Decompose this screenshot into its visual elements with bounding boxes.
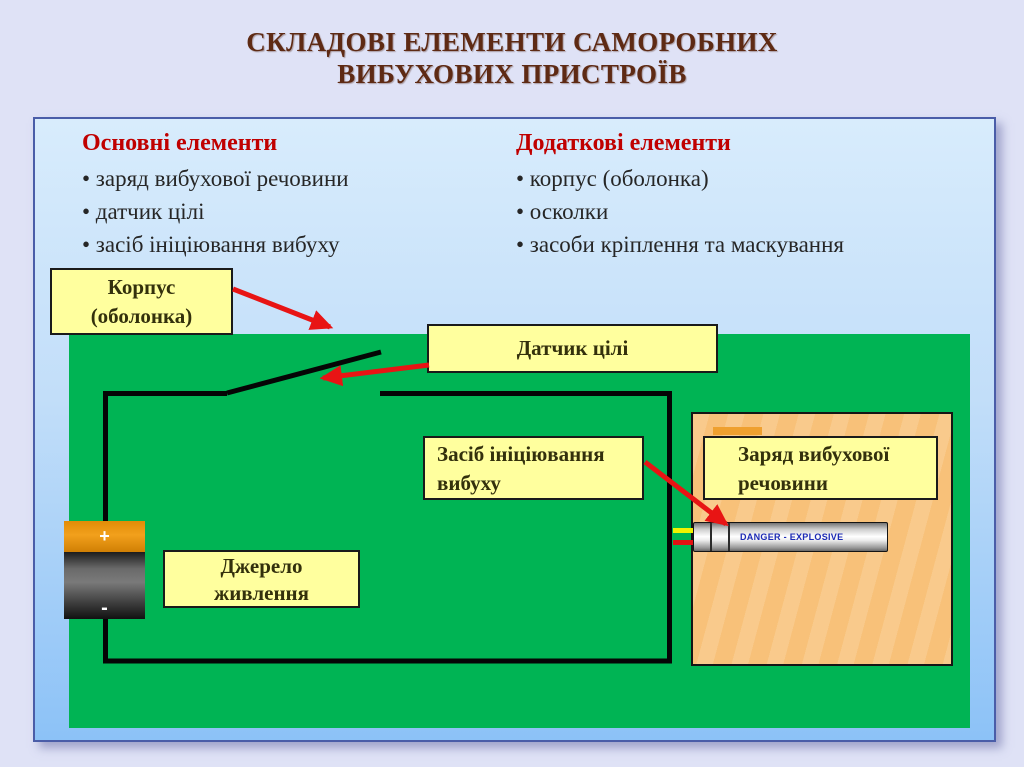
label-initiation-line1: Засіб ініціювання — [437, 440, 642, 469]
detonator-icon: DANGER - EXPLOSIVE — [693, 522, 888, 552]
additional-elements-header: Додаткові елементи — [516, 124, 844, 162]
label-power-line1: Джерело — [165, 553, 358, 580]
list-item: • корпус (оболонка) — [516, 162, 844, 195]
label-case-line2: (оболонка) — [52, 302, 231, 331]
charge-block-strip — [713, 427, 762, 435]
label-charge-line1: Заряд вибухової — [738, 440, 936, 469]
slide-title: СКЛАДОВІ ЕЛЕМЕНТИ САМОРОБНИХ ВИБУХОВИХ П… — [0, 26, 1024, 90]
list-item: • засоби кріплення та маскування — [516, 228, 844, 261]
detonator-segment-divider — [728, 523, 730, 551]
battery-plus-sign: + — [64, 525, 145, 547]
list-item: • осколки — [516, 195, 844, 228]
label-explosive-charge: Заряд вибухової речовини — [703, 436, 938, 500]
label-initiation-line2: вибуху — [437, 469, 642, 498]
label-case-line1: Корпус — [52, 273, 231, 302]
battery-icon: + - — [64, 521, 145, 619]
battery-positive-cap: + — [64, 521, 145, 552]
main-elements-header: Основні елементи — [82, 124, 349, 162]
danger-explosive-text: DANGER - EXPLOSIVE — [740, 532, 843, 542]
list-item: • заряд вибухової речовини — [82, 162, 349, 195]
presentation-slide: СКЛАДОВІ ЕЛЕМЕНТИ САМОРОБНИХ ВИБУХОВИХ П… — [0, 0, 1024, 767]
label-target-sensor-text: Датчик цілі — [517, 336, 629, 360]
slide-title-line1: СКЛАДОВІ ЕЛЕМЕНТИ САМОРОБНИХ — [0, 26, 1024, 58]
label-charge-line2: речовини — [738, 469, 936, 498]
list-item: • датчик цілі — [82, 195, 349, 228]
slide-title-line2: ВИБУХОВИХ ПРИСТРОЇВ — [0, 58, 1024, 90]
battery-minus-sign: - — [64, 598, 145, 618]
list-item: • засіб ініціювання вибуху — [82, 228, 349, 261]
label-case: Корпус (оболонка) — [50, 268, 233, 335]
detonator-segment-divider — [710, 523, 712, 551]
label-power-line2: живлення — [165, 580, 358, 607]
additional-elements-column: Додаткові елементи • корпус (оболонка) •… — [516, 124, 844, 261]
label-initiation-means: Засіб ініціювання вибуху — [423, 436, 644, 500]
main-elements-column: Основні елементи • заряд вибухової речов… — [82, 124, 349, 261]
battery-negative-body: - — [64, 552, 145, 619]
label-power-source: Джерело живлення — [163, 550, 360, 608]
label-target-sensor: Датчик цілі — [427, 324, 718, 373]
